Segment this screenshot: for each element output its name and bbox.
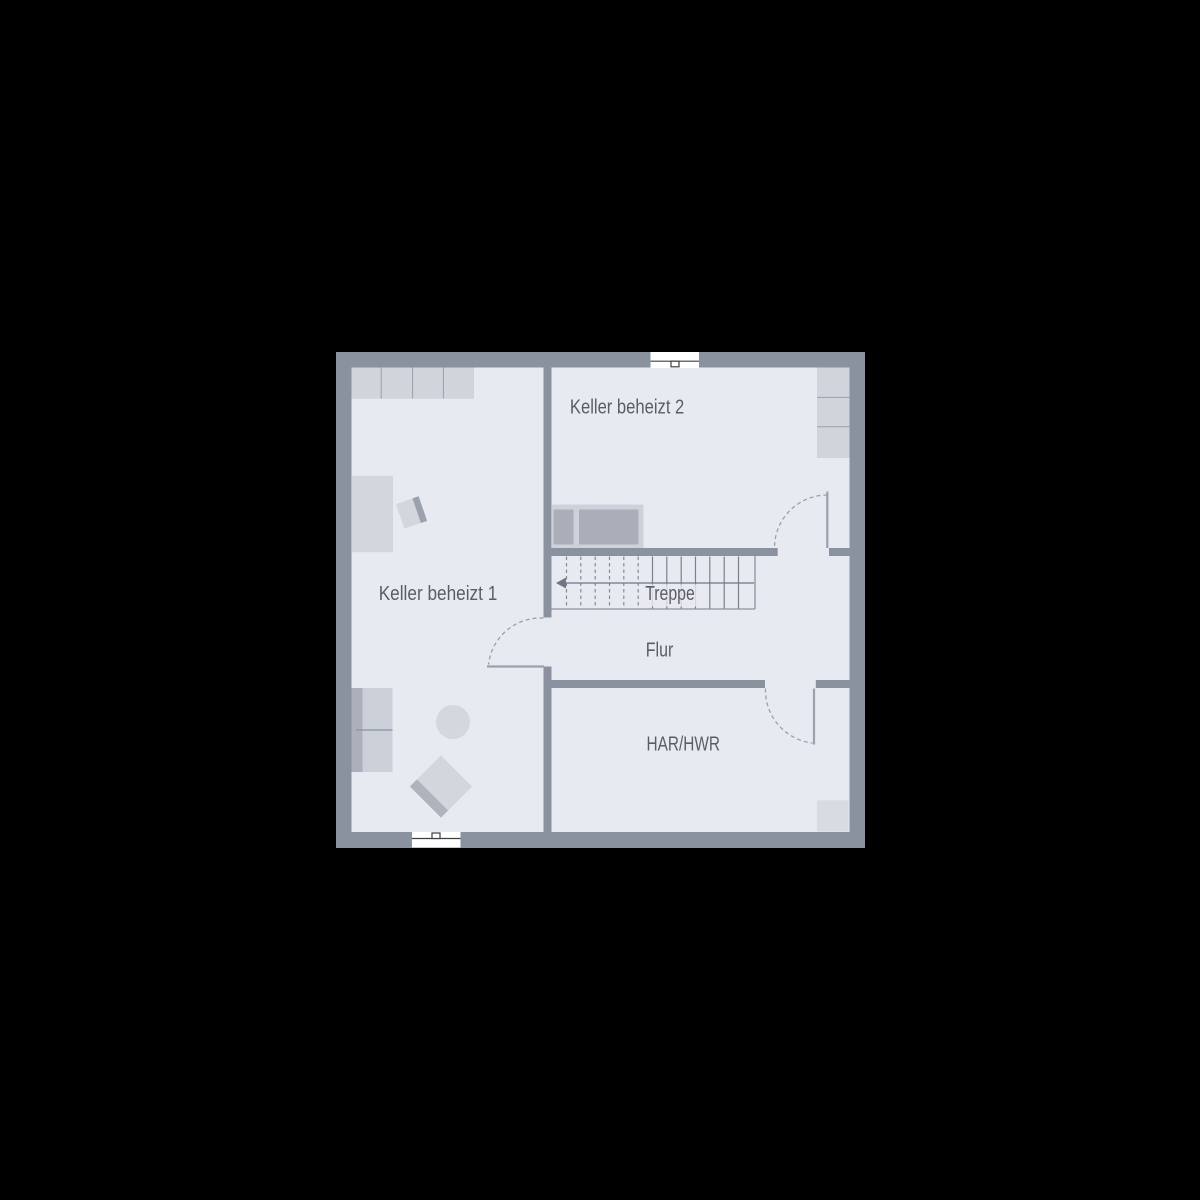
svg-text:Treppe: Treppe [645, 583, 695, 605]
svg-text:HAR/HWR: HAR/HWR [647, 734, 721, 756]
svg-text:Keller beheizt 2: Keller beheizt 2 [570, 396, 684, 418]
svg-text:Flur: Flur [646, 640, 674, 662]
svg-text:Keller beheizt 1: Keller beheizt 1 [379, 583, 498, 605]
